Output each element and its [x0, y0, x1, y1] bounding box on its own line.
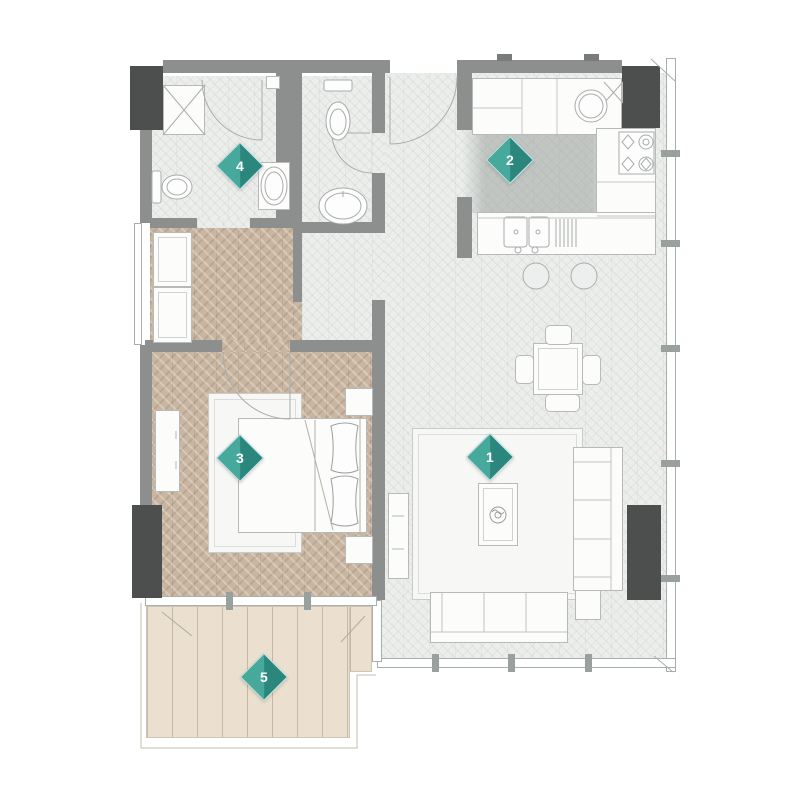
kitchen-island	[477, 212, 656, 255]
mullion-tick	[432, 654, 439, 672]
dining-chair-left	[515, 355, 534, 384]
bathroom-vanity	[258, 162, 290, 210]
mullion-tick	[661, 345, 680, 352]
wall-left-lower	[140, 345, 152, 505]
balcony-deck-corner	[350, 606, 372, 672]
wall-wc-bottom	[293, 222, 380, 233]
wall-wc-right-mid	[372, 173, 385, 233]
window-bedroom-balcony	[145, 596, 377, 606]
window-balcony-side	[372, 600, 382, 662]
wall-tick-top-1	[497, 54, 512, 61]
sofa-right	[573, 447, 623, 591]
opening-corridor	[293, 302, 302, 340]
kitchen-counter-top	[472, 78, 622, 135]
nightstand-bottom	[345, 536, 373, 564]
marker-label: 1	[486, 449, 494, 465]
column-top-left	[130, 66, 163, 130]
marker-label: 5	[260, 669, 268, 685]
duct-shaft	[163, 85, 205, 135]
wall-top-left	[163, 60, 390, 73]
bed	[238, 418, 367, 533]
marker-label: 3	[236, 450, 244, 466]
column-bottom-right	[627, 505, 661, 600]
floor-plan: 1 2 3 4 5	[0, 0, 800, 800]
mullion-tick	[661, 150, 680, 157]
opening-bath-door	[197, 218, 250, 228]
opening-wc-door	[372, 133, 385, 173]
wardrobe-lower	[153, 287, 192, 343]
sofa-bottom	[430, 592, 568, 643]
wall-bath-bottom-right	[250, 218, 302, 228]
floor-wc	[293, 76, 377, 233]
marker-label: 2	[506, 152, 514, 168]
wall-corridor-nook	[293, 222, 302, 302]
window-left	[134, 223, 142, 345]
shower-fixture	[266, 76, 280, 89]
column-top-right	[622, 66, 660, 128]
mullion-tick	[661, 575, 680, 582]
mullion-tick	[226, 592, 233, 610]
mullion-tick	[661, 460, 680, 467]
opening-bedroom-door	[222, 340, 290, 352]
coffee-table	[478, 483, 518, 546]
dining-chair-bottom	[545, 394, 580, 412]
wall-wc-right-top	[372, 73, 385, 133]
mullion-tick	[508, 654, 515, 672]
wall-bath-bottom-left	[150, 218, 197, 228]
opening-hall	[372, 233, 385, 300]
bedroom-dresser	[155, 410, 180, 492]
wall-bedroom-top-right	[290, 340, 383, 352]
dining-chair-top	[545, 325, 572, 345]
window-bottom	[377, 658, 676, 668]
mullion-tick	[304, 592, 311, 610]
dining-chair-right	[582, 355, 601, 385]
wall-tick-top-2	[584, 54, 599, 61]
wall-top-right	[457, 60, 622, 73]
column-bottom-left	[132, 505, 162, 598]
floor-hall-nook	[302, 228, 372, 345]
side-table	[575, 590, 601, 620]
nightstand-top	[345, 388, 373, 416]
wall-kitchen-stub-upper	[457, 73, 472, 130]
wardrobe-upper	[153, 232, 192, 287]
tv-console	[388, 493, 409, 579]
mullion-tick	[661, 240, 680, 247]
dining-table	[533, 343, 583, 395]
wall-bedroom-right	[372, 352, 385, 600]
wall-kitchen-stub-lower	[457, 197, 472, 258]
mullion-tick	[585, 654, 592, 672]
marker-label: 4	[236, 158, 244, 174]
